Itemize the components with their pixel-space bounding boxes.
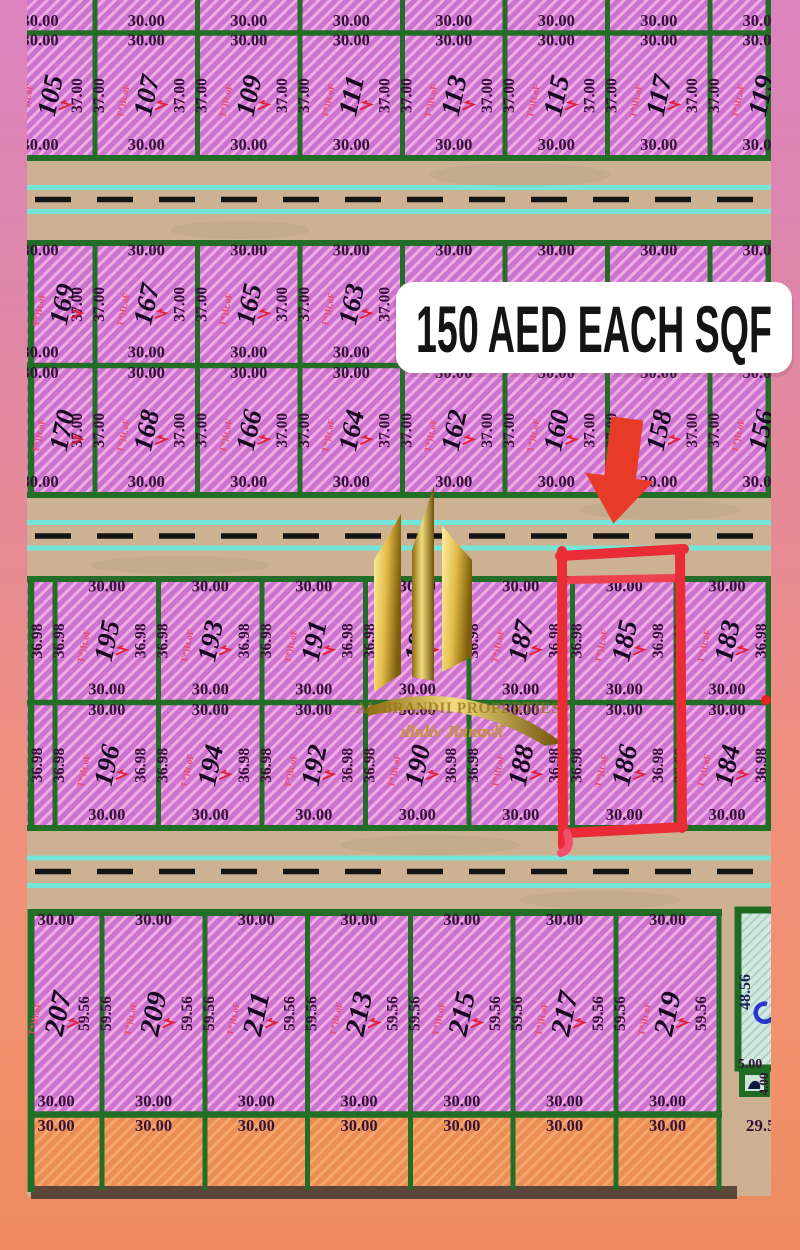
svg-text:30.00: 30.00 — [538, 472, 575, 491]
svg-text:30.00: 30.00 — [230, 135, 267, 154]
svg-text:30.00: 30.00 — [640, 11, 677, 30]
svg-text:37.00: 37.00 — [172, 413, 189, 448]
svg-text:37.00: 37.00 — [296, 287, 313, 322]
svg-text:37.00: 37.00 — [399, 413, 416, 448]
svg-text:5.00: 5.00 — [738, 1057, 763, 1072]
svg-text:37.00: 37.00 — [194, 413, 211, 448]
svg-text:37.00: 37.00 — [479, 78, 496, 113]
svg-text:4.00: 4.00 — [756, 1073, 771, 1096]
svg-text:30.00: 30.00 — [333, 135, 370, 154]
svg-text:36.98: 36.98 — [340, 623, 357, 658]
svg-text:30.00: 30.00 — [135, 910, 172, 929]
svg-text:30.00: 30.00 — [649, 1116, 686, 1135]
svg-text:59.56: 59.56 — [590, 996, 607, 1031]
svg-text:30.00: 30.00 — [238, 910, 275, 929]
svg-text:30.00: 30.00 — [708, 577, 745, 596]
svg-text:30.00: 30.00 — [192, 680, 229, 699]
svg-text:30.00: 30.00 — [21, 241, 58, 260]
svg-text:30.00: 30.00 — [435, 11, 472, 30]
svg-text:30.00: 30.00 — [708, 700, 745, 719]
svg-text:37.00: 37.00 — [604, 78, 621, 113]
svg-text:36.98: 36.98 — [569, 623, 586, 658]
svg-text:36.98: 36.98 — [362, 748, 379, 783]
svg-text:30.00: 30.00 — [295, 680, 332, 699]
svg-text:30.00: 30.00 — [88, 805, 125, 824]
svg-text:30.00: 30.00 — [502, 577, 539, 596]
svg-text:37.00: 37.00 — [296, 413, 313, 448]
svg-text:30.00: 30.00 — [230, 363, 267, 382]
svg-text:30.00: 30.00 — [538, 135, 575, 154]
svg-text:30.00: 30.00 — [606, 805, 643, 824]
svg-text:36.98: 36.98 — [443, 748, 460, 783]
svg-text:37.00: 37.00 — [274, 413, 291, 448]
svg-text:30.00: 30.00 — [88, 577, 125, 596]
svg-text:48.56: 48.56 — [737, 974, 754, 1010]
svg-text:37.00: 37.00 — [377, 78, 394, 113]
svg-text:37.00: 37.00 — [706, 413, 723, 448]
svg-text:30.00: 30.00 — [128, 472, 165, 491]
svg-text:36.98: 36.98 — [258, 748, 275, 783]
svg-text:30.00: 30.00 — [435, 135, 472, 154]
svg-text:30.00: 30.00 — [21, 343, 58, 362]
svg-text:30.00: 30.00 — [88, 680, 125, 699]
svg-text:37.00: 37.00 — [377, 413, 394, 448]
svg-text:30.00: 30.00 — [333, 31, 370, 50]
svg-text:59.56: 59.56 — [282, 996, 299, 1031]
svg-text:30.00: 30.00 — [333, 241, 370, 260]
svg-text:30.00: 30.00 — [546, 1092, 583, 1111]
svg-text:36.98: 36.98 — [155, 748, 172, 783]
svg-text:30.00: 30.00 — [649, 1092, 686, 1111]
svg-text:30.00: 30.00 — [333, 11, 370, 30]
svg-text:37.00: 37.00 — [684, 413, 701, 448]
svg-text:30.00: 30.00 — [443, 1116, 480, 1135]
svg-text:37.00: 37.00 — [296, 78, 313, 113]
svg-text:36.98: 36.98 — [133, 623, 150, 658]
svg-text:30.00: 30.00 — [606, 700, 643, 719]
svg-text:30.00: 30.00 — [230, 11, 267, 30]
svg-text:30.00: 30.00 — [333, 343, 370, 362]
svg-text:30.00: 30.00 — [21, 135, 58, 154]
svg-text:30.00: 30.00 — [230, 31, 267, 50]
svg-text:30.00: 30.00 — [333, 363, 370, 382]
svg-text:30.00: 30.00 — [606, 680, 643, 699]
svg-text:30.00: 30.00 — [538, 241, 575, 260]
svg-text:30.00: 30.00 — [21, 11, 58, 30]
svg-text:30.00: 30.00 — [435, 472, 472, 491]
svg-text:30.00: 30.00 — [399, 805, 436, 824]
svg-text:59.56: 59.56 — [693, 996, 710, 1031]
svg-text:59.56: 59.56 — [612, 996, 629, 1031]
svg-text:59.56: 59.56 — [407, 996, 424, 1031]
svg-text:30.00: 30.00 — [135, 1116, 172, 1135]
svg-text:30.00: 30.00 — [230, 241, 267, 260]
svg-text:30.00: 30.00 — [640, 135, 677, 154]
svg-text:59.56: 59.56 — [179, 996, 196, 1031]
svg-text:36.98: 36.98 — [236, 748, 253, 783]
svg-text:30.00: 30.00 — [37, 1116, 74, 1135]
svg-text:36.98: 36.98 — [340, 748, 357, 783]
svg-text:30.00: 30.00 — [37, 1092, 74, 1111]
svg-text:37.00: 37.00 — [91, 413, 108, 448]
svg-text:30.00: 30.00 — [230, 472, 267, 491]
svg-text:30.00: 30.00 — [21, 31, 58, 50]
svg-text:30.00: 30.00 — [21, 363, 58, 382]
svg-text:30.00: 30.00 — [502, 680, 539, 699]
svg-text:30.00: 30.00 — [295, 805, 332, 824]
svg-text:36.98: 36.98 — [155, 623, 172, 658]
svg-text:37.00: 37.00 — [501, 413, 518, 448]
svg-text:30.00: 30.00 — [128, 31, 165, 50]
svg-text:30.00: 30.00 — [435, 31, 472, 50]
svg-text:30.00: 30.00 — [295, 700, 332, 719]
svg-text:30.00: 30.00 — [340, 1116, 377, 1135]
svg-text:30.00: 30.00 — [295, 577, 332, 596]
svg-text:30.00: 30.00 — [640, 31, 677, 50]
svg-text:37.00: 37.00 — [582, 413, 599, 448]
svg-text:30.00: 30.00 — [88, 700, 125, 719]
svg-text:30.00: 30.00 — [538, 31, 575, 50]
svg-text:30.00: 30.00 — [546, 1116, 583, 1135]
svg-text:30.00: 30.00 — [435, 241, 472, 260]
svg-text:30.00: 30.00 — [443, 1092, 480, 1111]
svg-text:59.56: 59.56 — [201, 996, 218, 1031]
svg-text:30.00: 30.00 — [21, 472, 58, 491]
svg-text:36.98: 36.98 — [753, 748, 770, 783]
svg-text:30.00: 30.00 — [399, 680, 436, 699]
svg-text:36.98: 36.98 — [650, 748, 667, 783]
svg-text:30.00: 30.00 — [443, 910, 480, 929]
svg-text:37.00: 37.00 — [274, 78, 291, 113]
svg-text:30.00: 30.00 — [340, 910, 377, 929]
svg-text:59.56: 59.56 — [76, 996, 93, 1031]
svg-text:59.56: 59.56 — [509, 996, 526, 1031]
svg-text:30.00: 30.00 — [37, 910, 74, 929]
svg-text:36.98: 36.98 — [236, 623, 253, 658]
svg-text:30.00: 30.00 — [192, 805, 229, 824]
svg-text:36.98: 36.98 — [258, 623, 275, 658]
svg-text:30.00: 30.00 — [238, 1092, 275, 1111]
svg-text:36.98: 36.98 — [133, 748, 150, 783]
svg-text:36.98: 36.98 — [51, 748, 68, 783]
svg-text:59.56: 59.56 — [304, 996, 321, 1031]
svg-text:30.00: 30.00 — [333, 472, 370, 491]
svg-text:30.00: 30.00 — [340, 1092, 377, 1111]
svg-text:37.00: 37.00 — [172, 287, 189, 322]
svg-text:37.00: 37.00 — [91, 78, 108, 113]
svg-text:36.98: 36.98 — [569, 748, 586, 783]
svg-text:30.00: 30.00 — [192, 577, 229, 596]
svg-text:59.56: 59.56 — [487, 996, 504, 1031]
svg-text:36.98: 36.98 — [29, 623, 46, 658]
svg-text:36.98: 36.98 — [753, 623, 770, 658]
svg-text:30.00: 30.00 — [238, 1116, 275, 1135]
svg-text:30.00: 30.00 — [649, 910, 686, 929]
svg-text:ıllıılív Jlıınɑvll: ıllıılív Jlıınɑvll — [401, 722, 504, 741]
svg-text:37.00: 37.00 — [91, 287, 108, 322]
svg-text:37.00: 37.00 — [582, 78, 599, 113]
svg-text:30.00: 30.00 — [546, 910, 583, 929]
svg-text:36.98: 36.98 — [29, 747, 46, 782]
svg-text:AL BRANDII PROPERTIES: AL BRANDII PROPERTIES — [356, 700, 561, 717]
svg-text:37.00: 37.00 — [194, 287, 211, 322]
svg-text:37.00: 37.00 — [399, 78, 416, 113]
svg-text:59.56: 59.56 — [385, 996, 402, 1031]
svg-text:30.00: 30.00 — [192, 700, 229, 719]
svg-text:37.00: 37.00 — [706, 78, 723, 113]
svg-text:37.00: 37.00 — [172, 78, 189, 113]
svg-text:30.00: 30.00 — [538, 11, 575, 30]
svg-text:37.00: 37.00 — [684, 78, 701, 113]
svg-text:30.00: 30.00 — [128, 241, 165, 260]
svg-text:36.98: 36.98 — [51, 623, 68, 658]
svg-text:30.00: 30.00 — [708, 805, 745, 824]
svg-text:59.56: 59.56 — [98, 996, 115, 1031]
svg-text:36.98: 36.98 — [650, 623, 667, 658]
svg-text:37.00: 37.00 — [194, 78, 211, 113]
svg-text:30.00: 30.00 — [128, 11, 165, 30]
svg-text:37.00: 37.00 — [377, 287, 394, 322]
svg-text:30.00: 30.00 — [128, 135, 165, 154]
svg-text:30.00: 30.00 — [135, 1092, 172, 1111]
svg-text:37.00: 37.00 — [479, 413, 496, 448]
svg-text:37.00: 37.00 — [274, 287, 291, 322]
svg-text:30.00: 30.00 — [128, 363, 165, 382]
svg-text:36.98: 36.98 — [465, 748, 482, 783]
svg-text:37.00: 37.00 — [69, 78, 86, 113]
svg-text:30.00: 30.00 — [708, 680, 745, 699]
svg-text:150 AED EACH SQF: 150 AED EACH SQF — [416, 292, 772, 366]
svg-text:30.00: 30.00 — [128, 343, 165, 362]
svg-text:37.00: 37.00 — [501, 78, 518, 113]
svg-text:30.00: 30.00 — [502, 805, 539, 824]
svg-text:30.00: 30.00 — [230, 343, 267, 362]
svg-text:30.00: 30.00 — [640, 241, 677, 260]
